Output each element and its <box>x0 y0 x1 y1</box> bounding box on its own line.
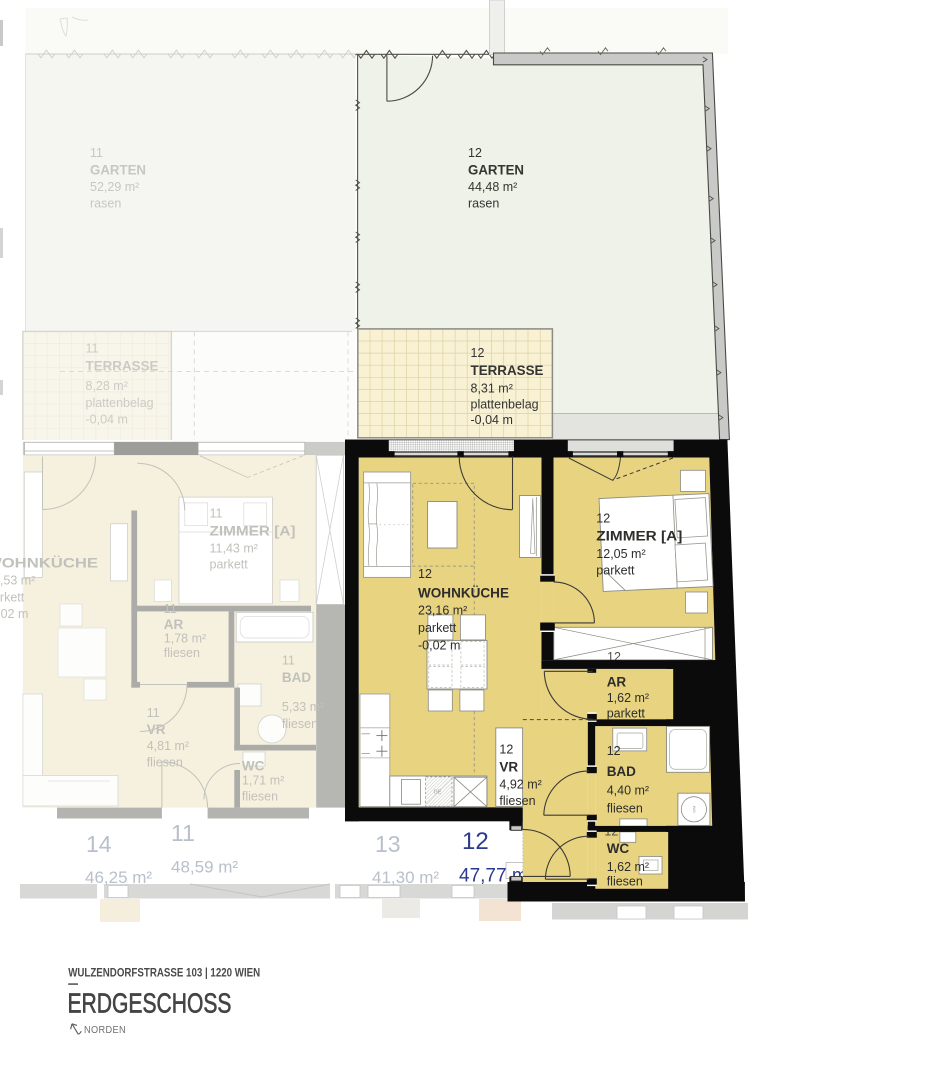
svg-text:plattenbelag: plattenbelag <box>471 398 539 412</box>
svg-text:fliesen: fliesen <box>147 756 183 770</box>
svg-text:17,53 m²: 17,53 m² <box>0 574 35 588</box>
svg-text:GARTEN: GARTEN <box>468 163 524 178</box>
svg-text:11: 11 <box>90 146 103 160</box>
svg-text:parkett: parkett <box>418 621 457 635</box>
svg-text:ZIMMER [A]: ZIMMER [A] <box>596 529 682 544</box>
svg-text:-0,04 m: -0,04 m <box>86 413 128 427</box>
svg-text:11: 11 <box>86 342 99 356</box>
svg-text:8,28 m²: 8,28 m² <box>86 379 128 393</box>
svg-text:1,78 m²: 1,78 m² <box>164 632 206 646</box>
svg-text:VR: VR <box>147 722 166 737</box>
svg-text:11: 11 <box>171 820 195 846</box>
svg-text:WC: WC <box>607 841 630 856</box>
svg-text:fliesen: fliesen <box>607 802 643 816</box>
svg-text:AR: AR <box>607 675 627 690</box>
svg-text:14: 14 <box>86 831 112 857</box>
svg-text:parkett: parkett <box>210 558 249 572</box>
svg-text:8,31 m²: 8,31 m² <box>471 382 513 396</box>
svg-text:WM: WM <box>692 806 697 813</box>
svg-text:fliesen: fliesen <box>282 717 318 731</box>
svg-text:11: 11 <box>282 654 295 668</box>
svg-text:-0,04 m: -0,04 m <box>471 413 513 427</box>
svg-text:11: 11 <box>147 706 160 720</box>
svg-text:1,71 m²: 1,71 m² <box>242 774 284 788</box>
svg-text:46,25 m²: 46,25 m² <box>85 868 152 887</box>
svg-text:48,59 m²: 48,59 m² <box>171 858 238 877</box>
svg-text:1,62 m²: 1,62 m² <box>607 691 649 705</box>
svg-text:WULZENDORFSTRASSE 103 | 1220 W: WULZENDORFSTRASSE 103 | 1220 WIEN <box>68 966 260 979</box>
svg-text:12: 12 <box>468 146 482 160</box>
svg-text:fliesen: fliesen <box>499 794 535 808</box>
svg-text:4,81 m²: 4,81 m² <box>147 739 189 753</box>
svg-text:NORDEN: NORDEN <box>84 1025 126 1036</box>
svg-text:parkett: parkett <box>0 591 25 605</box>
svg-text:TERRASSE: TERRASSE <box>86 359 159 374</box>
svg-text:23,16 m²: 23,16 m² <box>418 604 467 618</box>
svg-text:ZIMMER [A]: ZIMMER [A] <box>210 524 296 539</box>
svg-text:fliesen: fliesen <box>242 790 278 804</box>
svg-text:BAD: BAD <box>282 670 311 685</box>
svg-text:11: 11 <box>210 507 223 521</box>
svg-text:12: 12 <box>596 512 610 526</box>
svg-text:plattenbelag: plattenbelag <box>86 396 154 410</box>
svg-text:GARTEN: GARTEN <box>90 163 146 178</box>
svg-text:parkett: parkett <box>596 564 635 578</box>
svg-text:WOHNKÜCHE: WOHNKÜCHE <box>0 556 98 571</box>
svg-text:fliesen: fliesen <box>607 875 643 889</box>
svg-text:44,48 m²: 44,48 m² <box>468 180 517 194</box>
svg-text:-0,02 m: -0,02 m <box>0 607 28 621</box>
svg-text:41,30 m²: 41,30 m² <box>372 868 439 887</box>
svg-text:5,33 m²: 5,33 m² <box>282 700 324 714</box>
svg-text:AR: AR <box>164 617 184 632</box>
svg-text:parkett: parkett <box>607 707 646 721</box>
svg-text:BAD: BAD <box>607 764 636 779</box>
svg-text:4,92 m²: 4,92 m² <box>499 778 541 792</box>
svg-text:fliesen: fliesen <box>164 646 200 660</box>
svg-text:12: 12 <box>607 744 621 758</box>
svg-text:11: 11 <box>164 602 177 616</box>
svg-text:12: 12 <box>499 743 513 757</box>
svg-text:rasen: rasen <box>90 197 121 211</box>
svg-text:1,62 m²: 1,62 m² <box>607 860 649 874</box>
svg-text:12: 12 <box>418 567 432 581</box>
svg-text:12: 12 <box>462 828 489 855</box>
svg-text:VR: VR <box>499 760 518 775</box>
svg-text:WOHNKÜCHE: WOHNKÜCHE <box>418 586 509 601</box>
svg-text:11,43 m²: 11,43 m² <box>210 542 258 556</box>
svg-text:12,05 m²: 12,05 m² <box>596 547 645 561</box>
svg-text:13: 13 <box>375 831 401 857</box>
svg-text:-0,02 m: -0,02 m <box>418 639 460 653</box>
svg-text:52,29 m²: 52,29 m² <box>90 180 139 194</box>
svg-text:ERDGESCHOSS: ERDGESCHOSS <box>68 988 232 1019</box>
svg-text:12: 12 <box>471 346 485 360</box>
svg-text:TERRASSE: TERRASSE <box>471 363 544 378</box>
svg-text:4,40 m²: 4,40 m² <box>607 784 649 798</box>
svg-text:rasen: rasen <box>468 197 499 211</box>
svg-text:WC: WC <box>242 759 265 774</box>
svg-text:GE: GE <box>434 790 442 796</box>
